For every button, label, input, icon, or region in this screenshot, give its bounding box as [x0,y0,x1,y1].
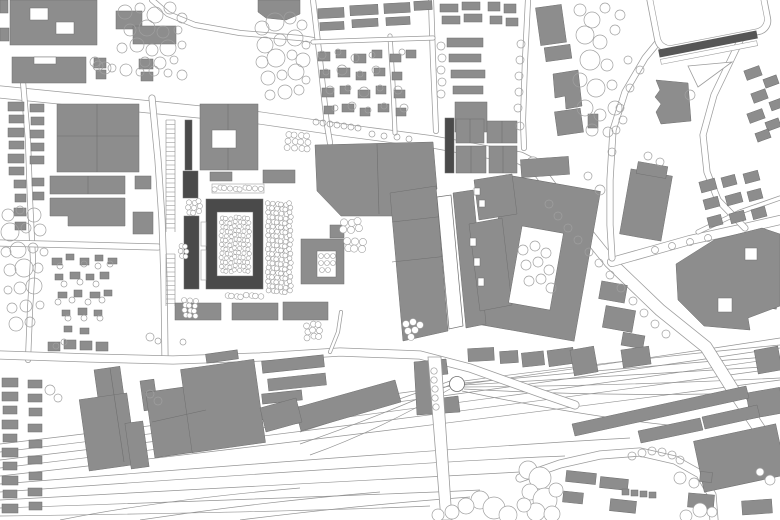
tree-canopy [549,483,563,497]
planter-strip [201,222,206,246]
building [50,176,125,194]
grove-tree [289,215,294,220]
building [52,258,62,265]
courtyard-cutout [30,8,48,20]
building [2,420,18,429]
grove-tree [243,292,249,298]
grove-tree [270,261,275,266]
building [232,303,278,320]
grove-tree [238,268,242,272]
grove-tree [220,251,224,255]
tree [662,330,670,338]
grove-tree [278,239,283,244]
building [520,156,569,177]
grove-tree [279,225,284,230]
building [10,0,97,45]
building [751,89,769,104]
building [414,1,432,11]
courtyard-tree [331,261,336,266]
grove-tree [265,224,270,229]
building [703,196,720,210]
courtyard-cutout [56,22,74,34]
grove-tree [266,219,271,224]
building [743,170,760,184]
tree [576,26,594,44]
building [562,491,583,504]
tree [302,41,310,49]
grove-tree [245,216,249,220]
grove-tree [270,201,275,206]
grove-tree [252,186,257,191]
building [30,130,44,138]
building [350,4,378,15]
building [535,4,566,45]
grove-tree [351,238,358,245]
tree [577,100,593,116]
tree-canopy [707,507,717,517]
grove-tree [187,303,192,308]
grove-tree [223,238,227,242]
grove-tree [246,234,250,238]
grove-tree [229,239,233,243]
grove-tree [304,146,310,152]
grove-tree [270,270,275,275]
building [2,448,18,457]
tree [624,56,632,64]
grove-tree [289,284,294,289]
tree [95,263,101,269]
grove-tree [193,298,198,303]
grove-tree [233,241,237,245]
tree [580,50,600,70]
building [31,117,44,125]
building [57,104,139,172]
grove-tree [287,256,292,261]
tree [9,317,23,331]
tree [1,247,11,257]
map-canvas [0,0,780,520]
grove-tree [223,260,227,264]
tree [601,59,613,71]
building [570,346,598,376]
building [141,72,153,81]
road-surface [431,0,436,131]
grove-tree [224,234,228,238]
grove-tree [287,201,292,206]
building [64,326,72,332]
grove-tree [274,243,279,248]
grove-tree [233,255,237,259]
rail-turntable [450,377,465,392]
building [29,472,42,480]
tree [99,297,105,303]
building [9,167,24,175]
building [9,141,24,149]
building [392,72,402,80]
grove-tree [178,249,183,254]
grove-tree [279,271,284,276]
tree [399,49,405,55]
courtyard-tree [326,268,331,273]
courtyard-tree [410,319,417,326]
grove-tree [274,220,279,225]
tree [256,56,268,68]
tree [265,90,275,100]
grove-tree [274,234,279,239]
grove-tree [247,230,251,234]
grove-tree [192,308,197,313]
grove-tree [287,247,292,252]
building [86,274,94,280]
grove-tree [186,205,191,210]
grove-tree [266,265,271,270]
grove-tree [191,205,196,210]
building [488,2,500,11]
grove-tree [283,253,288,258]
grove-tree [237,251,241,255]
grove-tree [227,186,232,191]
dark-building [185,120,192,170]
grove-tree [246,269,250,273]
grove-tree [355,225,362,232]
grove-tree [245,260,249,264]
building [506,18,518,26]
grove-tree [283,216,288,221]
grove-tree [304,335,310,341]
grove-tree [279,234,284,239]
grove-tree [266,288,271,293]
courtyard-tree [412,327,419,334]
tree [154,57,166,69]
building [29,502,42,510]
building [544,44,572,61]
building [15,194,26,202]
courtyard-tree [325,261,330,266]
building [747,109,765,124]
building [3,462,17,470]
building [31,143,44,151]
rail-line [0,490,480,508]
grove-tree [265,270,270,275]
grove-tree [224,247,228,251]
grove-tree [266,233,271,238]
grove-tree [219,242,223,246]
building [384,2,410,13]
tree-canopy [756,468,764,476]
grove-tree [287,233,292,238]
grove-tree [282,244,287,249]
courtyard-cutout [474,258,480,266]
building [28,394,42,402]
tree [593,35,607,49]
building [70,272,80,279]
building [631,490,638,496]
tree [294,85,304,95]
building [490,16,502,24]
tree [437,66,445,74]
grove-tree [285,138,291,144]
building [8,102,24,111]
grove-tree [247,221,251,225]
road-surface [152,98,165,358]
tree [595,259,603,267]
tree [146,333,154,341]
courtyard-tree [403,321,410,328]
grove-tree [184,249,189,254]
grove-tree [229,293,235,299]
grove-tree [242,229,246,233]
grove-tree [287,279,292,284]
grove-tree [253,293,259,299]
grove-tree [270,229,275,234]
grove-tree [274,289,279,294]
building [621,332,645,349]
tree [40,248,48,256]
grove-tree [212,187,217,192]
grove-tree [305,139,311,145]
tree [606,271,614,279]
grove-tree [266,279,271,284]
grove-tree [241,242,245,246]
tree [85,299,91,305]
site-plan-map [0,0,780,520]
tree [45,385,55,395]
building [468,347,495,361]
grove-tree [278,262,283,267]
building [3,434,17,442]
tree-canopy [499,506,517,520]
grove-tree [196,209,201,214]
grove-tree [288,251,293,256]
tree [651,320,659,328]
building [104,290,112,296]
tree-canopy [693,503,707,517]
tree [644,152,652,160]
tree [69,297,75,303]
grove-tree [270,247,275,252]
grove-tree [298,139,304,145]
grove-tree [224,269,228,273]
tree-canopy [765,475,775,485]
grove-tree [304,323,310,329]
building [338,68,350,77]
grove-tree [316,328,322,334]
building [655,80,691,124]
grove-tree [192,303,197,308]
building [449,54,481,62]
grove-tree [283,230,288,235]
building [32,178,44,186]
grove-tree [266,242,271,247]
building [372,50,382,58]
grove-tree [228,221,232,225]
grove-tree [288,288,293,293]
tree [607,80,617,90]
building [2,392,18,401]
grove-tree [279,248,284,253]
building [386,16,410,25]
courtyard-tree [319,261,324,266]
grove-tree [232,268,236,272]
building [30,156,44,164]
buildings-layer [0,0,780,515]
building [133,212,153,234]
grove-tree [275,229,280,234]
building [500,350,519,363]
grove-tree [270,252,275,257]
building [769,98,780,111]
grove-tree [241,220,245,224]
grove-tree [283,207,288,212]
grove-tree [284,145,290,151]
building [464,14,482,22]
grove-tree [245,238,249,242]
grove-tree [315,322,321,328]
grove-tree [182,308,187,313]
grove-tree [237,259,241,263]
building [50,198,125,226]
tree [155,338,161,344]
grove-tree [358,245,365,252]
grove-tree [238,294,244,300]
tree [584,12,600,28]
building [521,351,544,367]
grove-tree [265,201,270,206]
grove-tree [233,263,237,267]
building [210,172,232,181]
building [66,254,74,260]
tree [615,10,625,20]
building [721,174,737,187]
rail-line [60,488,300,520]
courtyard-cutout [745,248,757,260]
tree-canopy [680,510,692,520]
courtyard-cutout [212,130,236,148]
building [3,406,17,414]
tree [438,78,446,86]
grove-tree [351,245,358,252]
grove-tree [237,237,241,241]
building [55,274,63,280]
tree-canopy [544,506,560,520]
tree [574,4,586,16]
building [638,418,703,443]
building [554,108,583,135]
grove-tree [283,276,288,281]
building [33,192,44,200]
building [96,342,108,351]
tree [81,315,87,321]
tree [149,66,159,76]
building [744,66,762,81]
grove-tree [274,257,279,262]
building [2,378,18,387]
grove-tree [187,313,192,318]
courtyard-cutout [470,238,476,246]
building [453,86,483,94]
grove-tree [278,216,283,221]
grove-tree [183,254,188,259]
grove-tree [196,199,201,204]
building [318,52,330,61]
grove-tree [220,229,224,233]
tree [108,64,116,72]
building [320,21,344,30]
courtyard-cutout [474,188,480,195]
rail-line [0,506,430,516]
tree [61,281,67,287]
building [754,346,780,374]
grove-tree [219,234,223,238]
grove-tree [233,233,237,237]
grove-tree [219,220,223,224]
grove-tree [258,294,264,300]
grove-tree [246,247,250,251]
tree [4,264,16,276]
tree [437,42,445,50]
grove-tree [291,132,297,138]
tree [437,90,445,98]
grove-tree [238,246,242,250]
grove-tree [224,256,228,260]
grove-tree [219,264,223,268]
grove-tree [282,290,287,295]
courtyard-tree [320,268,325,273]
building [725,192,743,206]
building [28,424,42,432]
courtyard-cutout [34,57,56,64]
dark-building [445,118,454,173]
grove-tree [288,228,293,233]
courtyard-cutout [479,200,485,207]
tree [164,69,172,77]
building [352,18,378,27]
grove-tree [224,225,228,229]
courtyard-cutout [478,278,484,286]
tree [640,309,648,317]
grove-tree [186,200,191,205]
grove-tree [229,217,233,221]
tree [297,20,307,30]
grove-tree [288,219,293,224]
building [80,328,89,334]
grove-tree [344,238,351,245]
grove-tree [237,215,241,219]
building [258,0,300,20]
tree [584,172,592,180]
building [58,292,67,298]
building [474,174,517,220]
grove-tree [187,298,192,303]
dark-building [183,171,198,198]
grove-tree [287,210,292,215]
grove-tree [237,229,241,233]
tree [287,50,297,60]
grove-tree [287,224,292,229]
tree [656,158,664,166]
building [2,476,18,485]
tree [117,43,127,53]
grove-tree [278,285,283,290]
grove-tree [238,224,242,228]
grove-tree [229,261,233,265]
building [175,303,221,320]
building [553,70,582,109]
building [29,408,42,416]
tree-canopy [432,509,444,520]
building [78,308,87,315]
building [14,180,26,188]
